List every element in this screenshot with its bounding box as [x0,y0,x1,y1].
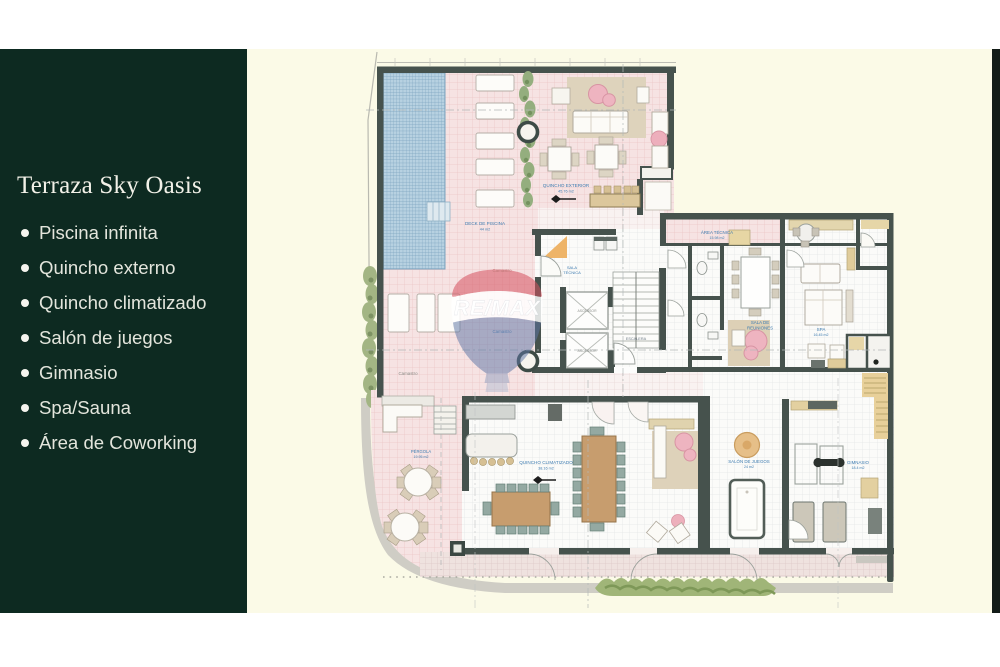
svg-text:Camastro: Camastro [492,268,512,273]
svg-text:19.95 m2: 19.95 m2 [414,455,429,459]
svg-text:QUINCHO EXTERIOR: QUINCHO EXTERIOR [543,183,590,188]
svg-text:REUNIONES: REUNIONES [747,326,773,331]
svg-text:38.16 m2: 38.16 m2 [538,467,554,471]
svg-text:44 m2: 44 m2 [480,228,491,232]
svg-text:TÉCNICA: TÉCNICA [563,270,581,275]
svg-text:GIMNASIO: GIMNASIO [847,460,870,465]
svg-text:18.4 m2: 18.4 m2 [852,466,865,470]
svg-text:16.45 m2: 16.45 m2 [814,333,829,337]
svg-text:ASCENSOR: ASCENSOR [577,309,597,313]
svg-text:Camastro: Camastro [398,371,418,376]
svg-text:ASCENSOR: ASCENSOR [577,349,597,353]
svg-text:SPA: SPA [817,327,827,332]
svg-text:QUINCHO CLIMATIZADO: QUINCHO CLIMATIZADO [519,460,573,465]
svg-text:SALA DE: SALA DE [751,320,769,325]
svg-text:ÁREA TÉCNICA: ÁREA TÉCNICA [701,230,733,235]
svg-text:DECK DE PISCINA: DECK DE PISCINA [465,221,506,226]
svg-text:24 m2: 24 m2 [744,465,754,469]
svg-text:RE/MAX: RE/MAX [454,296,542,320]
svg-text:ESCALERA: ESCALERA [626,337,647,341]
svg-text:PÉRGOLA: PÉRGOLA [411,449,431,454]
svg-text:Camastro: Camastro [492,329,512,334]
svg-text:15.98 m2: 15.98 m2 [710,236,725,240]
svg-text:45.76 m2: 45.76 m2 [558,190,574,194]
svg-text:SALÓN DE JUEGOS: SALÓN DE JUEGOS [728,459,770,464]
